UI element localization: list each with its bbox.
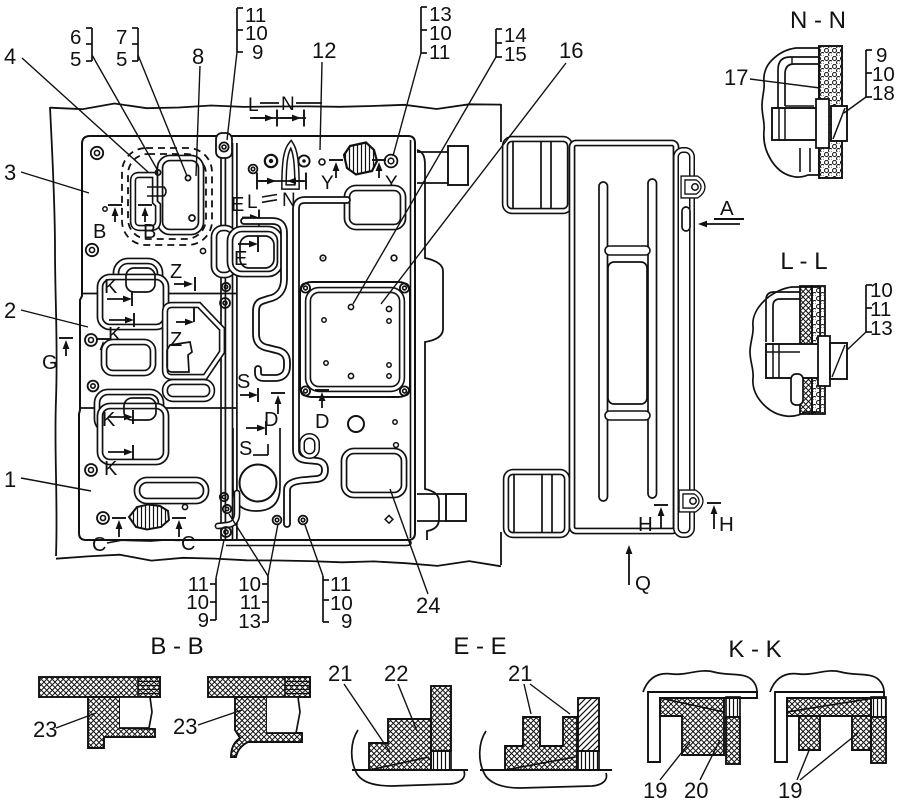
- svg-text:G: G: [42, 352, 58, 374]
- svg-text:K: K: [104, 276, 118, 298]
- svg-text:Z: Z: [170, 261, 182, 283]
- svg-text:19: 19: [643, 778, 667, 803]
- svg-text:L - L: L - L: [780, 248, 827, 275]
- svg-text:15: 15: [504, 43, 527, 66]
- svg-text:21: 21: [508, 661, 532, 686]
- svg-text:2: 2: [4, 298, 16, 323]
- svg-text:9: 9: [341, 610, 352, 633]
- svg-text:C: C: [92, 534, 106, 556]
- svg-text:4: 4: [4, 44, 16, 69]
- svg-text:23: 23: [33, 717, 57, 742]
- svg-text:3: 3: [4, 160, 16, 185]
- svg-text:N: N: [281, 94, 295, 115]
- svg-text:6: 6: [70, 26, 81, 49]
- svg-text:C: C: [181, 533, 195, 555]
- svg-text:19: 19: [778, 778, 802, 803]
- svg-text:B - B: B - B: [150, 633, 203, 660]
- svg-text:5: 5: [70, 48, 81, 71]
- svg-text:H: H: [719, 513, 734, 536]
- svg-text:K: K: [104, 458, 118, 480]
- svg-text:20: 20: [684, 778, 708, 803]
- svg-text:E: E: [231, 194, 244, 216]
- svg-text:17: 17: [724, 65, 748, 90]
- svg-text:13: 13: [870, 317, 893, 340]
- svg-text:K: K: [102, 409, 116, 431]
- svg-text:B: B: [143, 221, 156, 243]
- svg-text:L: L: [247, 192, 258, 213]
- svg-text:5: 5: [116, 48, 127, 71]
- svg-text:Q: Q: [635, 572, 651, 595]
- svg-text:L: L: [248, 95, 259, 116]
- svg-text:8: 8: [192, 44, 204, 69]
- svg-text:N: N: [282, 190, 296, 211]
- svg-text:13: 13: [238, 610, 261, 633]
- svg-text:7: 7: [116, 26, 127, 49]
- svg-text:18: 18: [872, 82, 895, 105]
- svg-text:21: 21: [328, 661, 352, 686]
- svg-text:E - E: E - E: [453, 633, 506, 660]
- svg-text:Y: Y: [321, 173, 334, 194]
- svg-text:N - N: N - N: [790, 7, 846, 34]
- svg-text:D: D: [315, 411, 329, 433]
- svg-text:E: E: [234, 248, 247, 270]
- svg-text:1: 1: [4, 467, 16, 492]
- svg-text:A: A: [720, 197, 734, 220]
- svg-text:S: S: [237, 371, 250, 393]
- svg-text:24: 24: [416, 593, 440, 618]
- svg-text:S: S: [239, 438, 252, 460]
- svg-text:K - K: K - K: [728, 636, 781, 663]
- svg-text:23: 23: [173, 714, 197, 739]
- svg-text:H: H: [638, 513, 653, 536]
- svg-text:16: 16: [559, 38, 583, 63]
- svg-text:B: B: [93, 221, 106, 243]
- svg-text:11: 11: [429, 41, 450, 64]
- svg-text:9: 9: [198, 609, 209, 632]
- svg-text:Z: Z: [170, 329, 182, 351]
- svg-text:9: 9: [252, 41, 263, 64]
- svg-text:12: 12: [312, 38, 336, 63]
- svg-text:22: 22: [384, 661, 408, 686]
